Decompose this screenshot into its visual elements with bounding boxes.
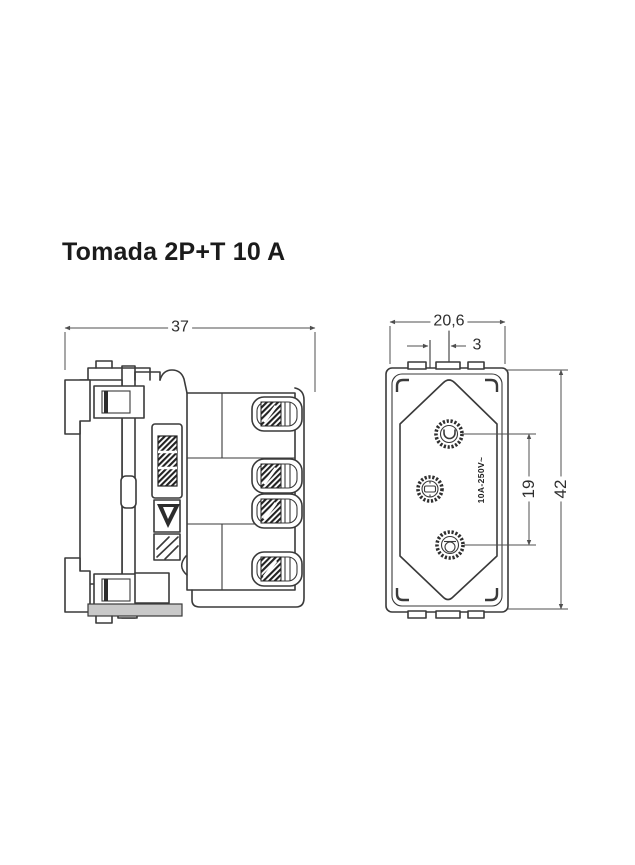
dim-label-earth-offset: 3: [470, 338, 485, 355]
terminal-screws: [252, 397, 302, 586]
dim-label-side-width: 37: [168, 320, 192, 337]
earth-hole-middle: [418, 477, 442, 501]
bottom-lip-shaded: [88, 604, 182, 616]
dim-label-pin-spacing: 19: [520, 477, 538, 502]
module-top-tabs: [408, 362, 484, 369]
module-bottom-tabs: [408, 611, 484, 618]
drawing-sheet: Tomada 2P+T 10 A: [0, 0, 635, 865]
top-lip: [88, 368, 150, 380]
technical-drawing: [0, 0, 635, 865]
bottom-lip-tab: [96, 616, 112, 623]
pin-hole-top: [436, 421, 462, 447]
dim-label-front-width: 20,6: [430, 314, 467, 331]
side-tab: [121, 476, 136, 508]
top-cap: [135, 372, 160, 380]
top-lip-tab: [96, 361, 112, 368]
contact-stack: [152, 424, 182, 560]
side-view-body: [65, 361, 304, 623]
pin-hole-bottom: [437, 532, 463, 558]
top-shoulder: [160, 370, 187, 393]
dim-label-height: 42: [552, 477, 570, 502]
rating-marking: 10A-250V~: [477, 457, 486, 504]
side-view: [65, 328, 315, 623]
module-outline: [386, 368, 508, 612]
latch-hook: [182, 556, 187, 575]
